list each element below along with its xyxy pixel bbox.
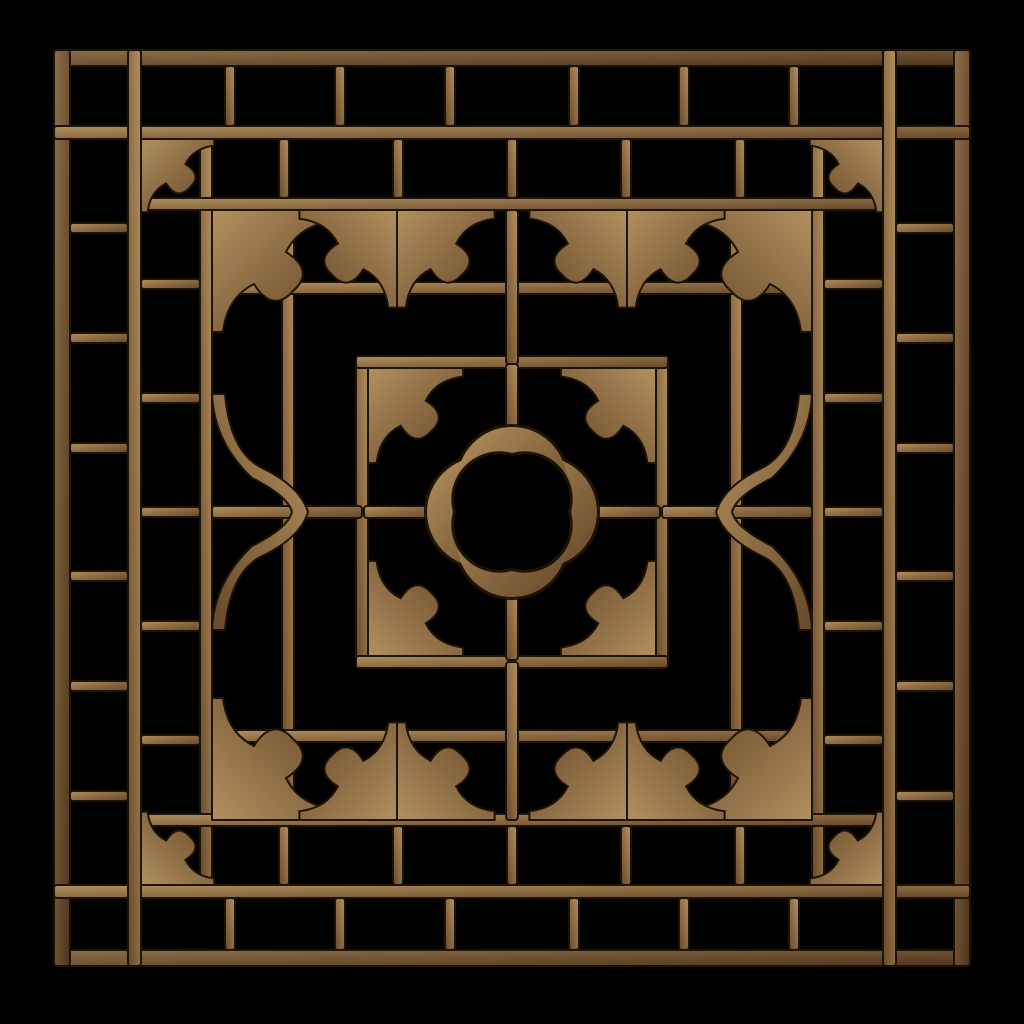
lattice-bar bbox=[621, 139, 631, 198]
lattice-bar bbox=[393, 826, 403, 885]
wooden-lattice-panel-photo bbox=[0, 0, 1024, 1024]
lattice-bar bbox=[896, 443, 954, 453]
lattice-bar bbox=[141, 279, 200, 289]
lattice-bar bbox=[54, 126, 970, 139]
lattice-bar bbox=[883, 50, 896, 966]
lattice-bar bbox=[70, 791, 128, 801]
lattice-bar bbox=[735, 139, 745, 198]
lattice-bar bbox=[662, 506, 812, 518]
lattice-bar bbox=[335, 898, 345, 950]
quatrefoil-hole bbox=[454, 454, 544, 544]
lattice-bar bbox=[824, 507, 883, 517]
lattice-bar bbox=[507, 826, 517, 885]
lattice-bar bbox=[569, 66, 579, 126]
lattice-bar bbox=[679, 66, 689, 126]
lattice-bar bbox=[70, 333, 128, 343]
lattice-bar bbox=[824, 279, 883, 289]
lattice-bar bbox=[896, 791, 954, 801]
lattice-bar bbox=[225, 66, 235, 126]
lattice-bar bbox=[141, 198, 883, 210]
frame-bar bbox=[54, 50, 970, 66]
lattice-bar bbox=[393, 139, 403, 198]
lattice-bar bbox=[789, 66, 799, 126]
photo-stage bbox=[0, 0, 1024, 1024]
lattice-bar bbox=[506, 364, 518, 434]
lattice-bar bbox=[70, 681, 128, 691]
frame-bar bbox=[54, 50, 70, 966]
lattice-bar bbox=[569, 898, 579, 950]
lattice-bar bbox=[279, 139, 289, 198]
frame-bar bbox=[954, 50, 970, 966]
lattice-bar bbox=[128, 50, 141, 966]
lattice-bar bbox=[507, 139, 517, 198]
lattice-bar bbox=[445, 898, 455, 950]
lattice-bar bbox=[824, 735, 883, 745]
lattice-bar bbox=[364, 506, 434, 518]
lattice-bar bbox=[812, 139, 824, 885]
lattice-bar bbox=[212, 506, 362, 518]
lattice-bar bbox=[200, 139, 212, 885]
lattice-bar bbox=[621, 826, 631, 885]
lattice-bar bbox=[70, 443, 128, 453]
lattice-bar bbox=[335, 66, 345, 126]
lattice-bar bbox=[141, 621, 200, 631]
lattice-bar bbox=[896, 571, 954, 581]
lattice-bar bbox=[590, 506, 660, 518]
lattice-bar bbox=[141, 507, 200, 517]
lattice-bar bbox=[54, 885, 970, 898]
lattice-bar bbox=[70, 223, 128, 233]
lattice-bar bbox=[506, 662, 518, 820]
lattice-bar bbox=[445, 66, 455, 126]
frame-bar bbox=[54, 950, 970, 966]
lattice-bar bbox=[789, 898, 799, 950]
lattice-bar bbox=[735, 826, 745, 885]
lattice-bar bbox=[679, 898, 689, 950]
lattice-bar bbox=[896, 681, 954, 691]
lattice-bar bbox=[70, 571, 128, 581]
lattice-bar bbox=[896, 333, 954, 343]
lattice-bar bbox=[824, 621, 883, 631]
lattice-bar bbox=[279, 826, 289, 885]
lattice-bar bbox=[225, 898, 235, 950]
lattice-bar bbox=[506, 210, 518, 364]
lattice-bar bbox=[141, 393, 200, 403]
lattice-bar bbox=[896, 223, 954, 233]
lattice-bar bbox=[141, 735, 200, 745]
lattice-bar bbox=[824, 393, 883, 403]
lattice-bar bbox=[506, 590, 518, 660]
